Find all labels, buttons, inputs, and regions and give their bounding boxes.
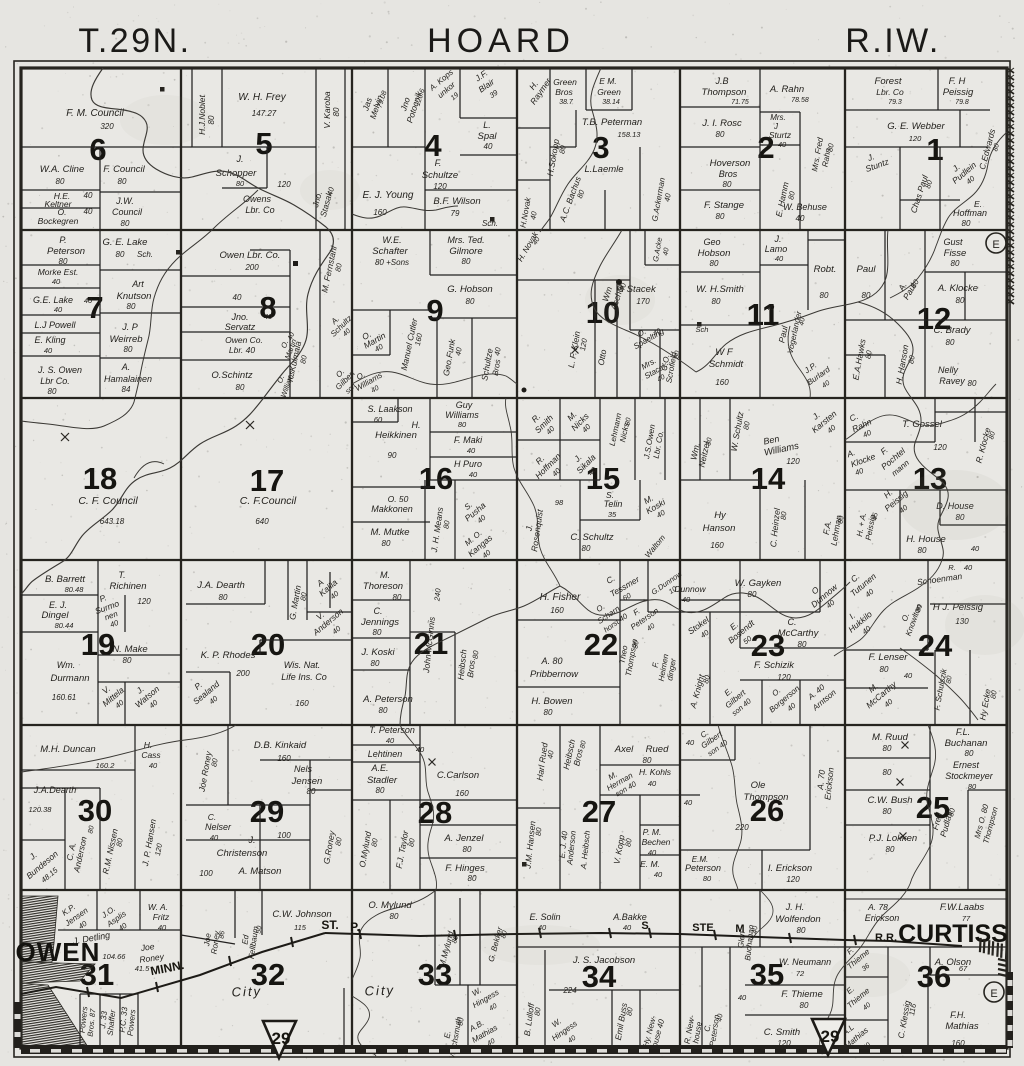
svg-text:F.W.Laabs: F.W.Laabs xyxy=(940,902,985,913)
svg-text:Ravey: Ravey xyxy=(939,376,965,386)
svg-text:Lbr. Co: Lbr. Co xyxy=(876,87,904,97)
svg-text:S. Laakson: S. Laakson xyxy=(367,404,412,414)
svg-text:115: 115 xyxy=(294,923,307,932)
svg-text:Cass: Cass xyxy=(141,750,161,760)
svg-text:Bros: Bros xyxy=(719,169,738,179)
svg-text:F.: F. xyxy=(435,158,442,168)
svg-text:I. Erickson: I. Erickson xyxy=(768,863,812,874)
svg-text:18: 18 xyxy=(83,461,117,496)
svg-text:Council: Council xyxy=(112,207,143,217)
svg-text:80: 80 xyxy=(236,179,245,188)
svg-text:Ernest: Ernest xyxy=(953,760,980,770)
svg-text:E. J.: E. J. xyxy=(49,600,67,610)
svg-text:80: 80 xyxy=(457,1017,465,1026)
svg-text:80: 80 xyxy=(883,768,892,777)
svg-text:W. Behuse: W. Behuse xyxy=(783,202,827,212)
svg-text:40: 40 xyxy=(686,738,695,747)
svg-text:40: 40 xyxy=(964,563,973,572)
svg-text:E. Solin: E. Solin xyxy=(529,912,560,922)
svg-text:80: 80 xyxy=(307,787,316,796)
svg-text:A. Jenzel: A. Jenzel xyxy=(443,833,484,844)
svg-text:C.: C. xyxy=(788,617,797,627)
svg-text:C.W. Bush: C.W. Bush xyxy=(867,795,912,806)
svg-text:160: 160 xyxy=(715,378,729,387)
svg-text:1: 1 xyxy=(926,132,943,167)
svg-text:Green: Green xyxy=(597,87,621,97)
svg-text:Williams: Williams xyxy=(445,410,479,420)
svg-text:A.E.: A.E. xyxy=(370,763,388,773)
svg-text:Morke Est.: Morke Est. xyxy=(38,267,79,277)
svg-text:C. F. Council: C. F. Council xyxy=(78,495,138,507)
svg-text:Bros: Bros xyxy=(555,87,573,97)
svg-text:Sch.: Sch. xyxy=(137,250,153,259)
svg-text:R.IW.: R.IW. xyxy=(845,22,941,60)
svg-text:J.: J. xyxy=(235,154,243,164)
svg-text:Gilmore: Gilmore xyxy=(449,246,482,257)
svg-text:CURTISS: CURTISS xyxy=(898,920,1008,948)
svg-text:50: 50 xyxy=(256,925,264,934)
svg-text:F. Hinges: F. Hinges xyxy=(445,863,485,874)
svg-text:Schopper: Schopper xyxy=(216,168,258,179)
svg-text:C.: C. xyxy=(208,812,217,822)
svg-text:80: 80 xyxy=(59,257,68,266)
svg-text:40: 40 xyxy=(752,926,760,935)
svg-text:16: 16 xyxy=(419,461,453,496)
svg-text:Thompson: Thompson xyxy=(744,792,789,803)
svg-text:30: 30 xyxy=(78,793,112,828)
svg-text:E M.: E M. xyxy=(599,76,616,86)
svg-text:98: 98 xyxy=(555,498,564,507)
svg-text:40: 40 xyxy=(54,305,63,314)
svg-text:G. Hobson: G. Hobson xyxy=(447,284,492,295)
svg-text:80: 80 xyxy=(332,107,341,116)
svg-text:80: 80 xyxy=(800,1001,809,1010)
svg-text:40: 40 xyxy=(648,779,657,788)
svg-text:100: 100 xyxy=(199,869,213,878)
svg-text:80: 80 xyxy=(712,297,721,306)
svg-text:38.14: 38.14 xyxy=(602,99,620,106)
svg-text:Green: Green xyxy=(553,77,577,87)
svg-text:40: 40 xyxy=(233,293,242,302)
svg-text:80: 80 xyxy=(945,675,953,684)
svg-text:80: 80 xyxy=(956,296,965,305)
svg-text:Guy: Guy xyxy=(456,400,473,410)
svg-text:F.H.: F.H. xyxy=(950,1010,966,1020)
svg-text:40: 40 xyxy=(662,247,670,256)
svg-text:Hamalainen: Hamalainen xyxy=(104,374,152,384)
svg-text:S: S xyxy=(641,920,648,932)
svg-text:160.2: 160.2 xyxy=(96,761,116,770)
svg-text:5: 5 xyxy=(255,126,272,161)
svg-text:120: 120 xyxy=(433,182,447,191)
svg-text:Schultze: Schultze xyxy=(422,170,458,181)
svg-text:320: 320 xyxy=(100,122,114,131)
svg-text:80: 80 xyxy=(703,874,712,883)
svg-text:80: 80 xyxy=(716,130,725,139)
svg-text:120: 120 xyxy=(137,597,151,606)
svg-text:HOARD: HOARD xyxy=(427,22,575,60)
svg-text:80: 80 xyxy=(393,593,402,602)
svg-text:80: 80 xyxy=(56,177,65,186)
svg-text:Peissig: Peissig xyxy=(943,87,974,98)
svg-text:Stadler: Stadler xyxy=(367,775,398,786)
svg-text:A. 78: A. 78 xyxy=(867,902,888,912)
svg-text:M. Mutke: M. Mutke xyxy=(370,527,409,538)
svg-text:Hoverson: Hoverson xyxy=(710,158,751,169)
svg-text:A. 80: A. 80 xyxy=(540,656,562,666)
svg-text:V. Karoba: V. Karoba xyxy=(322,91,332,128)
svg-text:80: 80 xyxy=(946,338,955,347)
svg-text:240: 240 xyxy=(432,587,442,602)
svg-text:80: 80 xyxy=(376,786,385,795)
svg-text:80: 80 xyxy=(582,544,591,553)
svg-text:J. I. Rosc: J. I. Rosc xyxy=(701,118,742,129)
svg-text:79.3: 79.3 xyxy=(888,99,902,106)
svg-text:80: 80 xyxy=(883,807,892,816)
svg-text:40: 40 xyxy=(717,1013,725,1022)
svg-text:A. Matson: A. Matson xyxy=(238,866,282,877)
svg-text:120: 120 xyxy=(786,875,800,884)
svg-text:38.7: 38.7 xyxy=(559,99,574,106)
svg-text:80: 80 xyxy=(962,219,971,228)
svg-text:80: 80 xyxy=(382,539,391,548)
svg-text:H.: H. xyxy=(412,420,421,430)
svg-text:T. Peterson: T. Peterson xyxy=(369,725,415,735)
svg-text:F. Thieme: F. Thieme xyxy=(781,989,823,1000)
svg-text:Fritz: Fritz xyxy=(153,912,170,922)
svg-text:City: City xyxy=(231,983,262,999)
svg-text:City: City xyxy=(364,982,395,998)
svg-text:160: 160 xyxy=(550,606,564,615)
svg-text:E: E xyxy=(992,239,999,251)
svg-text:79: 79 xyxy=(451,209,460,218)
svg-text:Hanson: Hanson xyxy=(703,523,736,534)
svg-text:40: 40 xyxy=(623,923,632,932)
svg-text:27: 27 xyxy=(582,794,616,829)
svg-text:Mrs.: Mrs. xyxy=(770,113,786,122)
svg-text:J.: J. xyxy=(247,835,255,845)
svg-text:40: 40 xyxy=(210,833,219,842)
svg-text:A. Klocke: A. Klocke xyxy=(937,283,978,294)
svg-text:40: 40 xyxy=(84,207,93,216)
svg-text:Joe: Joe xyxy=(139,941,155,953)
svg-text:R.R.: R.R. xyxy=(875,932,897,944)
svg-text:Jensen: Jensen xyxy=(291,776,323,787)
svg-text:P.J. Lokken: P.J. Lokken xyxy=(869,833,917,844)
svg-text:Jennings: Jennings xyxy=(360,617,399,628)
svg-text:40: 40 xyxy=(796,214,805,223)
svg-text:120.38: 120.38 xyxy=(29,805,53,814)
svg-text:40: 40 xyxy=(484,142,493,151)
svg-text:Lamo: Lamo xyxy=(765,244,788,254)
svg-text:Sturtz: Sturtz xyxy=(769,130,792,140)
svg-text:J.B: J.B xyxy=(714,76,728,86)
svg-text:P.: P. xyxy=(59,235,66,245)
svg-text:80: 80 xyxy=(124,345,133,354)
svg-text:Nelly: Nelly xyxy=(938,365,959,375)
svg-text:Thompson: Thompson xyxy=(702,87,747,98)
svg-text:40: 40 xyxy=(738,993,747,1002)
svg-text:40: 40 xyxy=(682,595,691,604)
svg-text:M.H. Duncan: M.H. Duncan xyxy=(40,744,95,755)
svg-text:T.: T. xyxy=(118,570,125,580)
svg-text:643.18: 643.18 xyxy=(100,517,125,526)
svg-text:640: 640 xyxy=(255,517,269,526)
svg-text:80: 80 xyxy=(632,640,640,649)
svg-text:Nels: Nels xyxy=(294,764,313,774)
svg-text:80: 80 xyxy=(379,706,388,715)
svg-text:80: 80 xyxy=(880,665,889,674)
svg-text:Axel: Axel xyxy=(614,744,634,755)
svg-text:Life Ins. Co: Life Ins. Co xyxy=(281,672,327,682)
svg-text:Robt.: Robt. xyxy=(814,264,837,275)
svg-text:F. Stange: F. Stange xyxy=(704,200,744,211)
svg-text:80: 80 xyxy=(723,180,732,189)
svg-text:158.13: 158.13 xyxy=(618,130,642,139)
svg-text:Lbr. 40: Lbr. 40 xyxy=(229,345,255,355)
svg-text:D.B. Kinkaid: D.B. Kinkaid xyxy=(254,740,307,751)
svg-text:80: 80 xyxy=(458,420,467,429)
svg-text:80: 80 xyxy=(236,383,245,392)
svg-text:F. H: F. H xyxy=(949,76,966,87)
svg-text:80: 80 xyxy=(883,744,892,753)
svg-text:Erickson: Erickson xyxy=(865,913,900,923)
svg-text:W. H.Smith: W. H.Smith xyxy=(696,284,744,295)
svg-text:Wolfendon: Wolfendon xyxy=(775,914,820,925)
svg-text:O. 50: O. 50 xyxy=(388,494,409,504)
svg-text:6: 6 xyxy=(89,132,106,167)
svg-text:B.F. Wilson: B.F. Wilson xyxy=(433,196,480,207)
svg-text:Heikkinen: Heikkinen xyxy=(375,430,417,441)
svg-text:Wm.: Wm. xyxy=(57,660,76,670)
svg-text:M. Ruud: M. Ruud xyxy=(872,732,909,743)
svg-text:40: 40 xyxy=(149,761,158,770)
svg-text:Dunnow: Dunnow xyxy=(674,584,706,594)
svg-text:Knutson: Knutson xyxy=(117,291,152,302)
svg-text:Forest: Forest xyxy=(875,76,902,87)
svg-text:J.: J. xyxy=(773,234,781,244)
svg-text:40: 40 xyxy=(971,544,980,553)
svg-text:120: 120 xyxy=(909,134,922,143)
svg-text:Spal: Spal xyxy=(477,131,497,142)
svg-text:40: 40 xyxy=(158,923,167,932)
svg-text:120: 120 xyxy=(786,457,800,466)
svg-text:W. Gayken: W. Gayken xyxy=(735,578,782,589)
svg-text:Dingel: Dingel xyxy=(42,610,70,621)
svg-text:80: 80 xyxy=(48,387,57,396)
svg-text:35: 35 xyxy=(608,510,617,519)
svg-text:224: 224 xyxy=(562,986,577,995)
svg-text:W.E.: W.E. xyxy=(382,235,401,245)
svg-text:80: 80 xyxy=(219,593,228,602)
svg-text:Weirreb: Weirreb xyxy=(109,334,142,345)
svg-text:Jno.: Jno. xyxy=(230,312,248,322)
svg-text:40: 40 xyxy=(386,736,395,745)
svg-text:71.75: 71.75 xyxy=(731,99,749,106)
svg-text:Stockmeyer: Stockmeyer xyxy=(945,771,994,781)
svg-text:Ole: Ole xyxy=(751,780,766,791)
svg-text:F. Maki: F. Maki xyxy=(454,435,483,445)
svg-text:E. Kling: E. Kling xyxy=(34,335,65,345)
svg-text:Hy: Hy xyxy=(714,510,727,521)
svg-text:Pribbernow: Pribbernow xyxy=(530,669,579,680)
svg-text:80: 80 xyxy=(918,546,927,555)
svg-text:Lbr. Co: Lbr. Co xyxy=(245,205,274,215)
svg-text:160.61: 160.61 xyxy=(52,693,76,702)
svg-text:Schafter: Schafter xyxy=(372,246,408,257)
svg-text:P. M.: P. M. xyxy=(643,827,662,837)
svg-text:Lehtinen: Lehtinen xyxy=(368,749,403,759)
svg-text:C. Brady: C. Brady xyxy=(934,325,972,336)
svg-text:80: 80 xyxy=(544,708,553,717)
svg-text:K. P. Rhodes: K. P. Rhodes xyxy=(201,650,256,661)
svg-text:Buchanan: Buchanan xyxy=(945,738,988,749)
svg-text:60: 60 xyxy=(374,415,383,424)
svg-text:78.58: 78.58 xyxy=(791,97,809,104)
svg-text:H. Kohls: H. Kohls xyxy=(639,767,672,777)
svg-text:Mrs. Ted.: Mrs. Ted. xyxy=(447,235,484,245)
svg-text:Hoffman: Hoffman xyxy=(953,208,987,218)
svg-text:80: 80 xyxy=(951,259,960,268)
svg-text:C.: C. xyxy=(374,606,383,616)
svg-text:80: 80 xyxy=(466,297,475,306)
svg-text:M: M xyxy=(735,923,744,935)
svg-text:11: 11 xyxy=(747,297,780,332)
svg-text:Rued: Rued xyxy=(646,744,669,755)
svg-text:80: 80 xyxy=(462,257,471,266)
svg-text:J. P: J. P xyxy=(121,322,138,332)
svg-text:L.J Powell: L.J Powell xyxy=(34,320,76,330)
svg-text:O.Schintz: O.Schintz xyxy=(211,370,252,381)
svg-text:200: 200 xyxy=(235,669,250,678)
svg-text:40: 40 xyxy=(467,446,476,455)
svg-text:40: 40 xyxy=(469,470,478,479)
svg-text:80: 80 xyxy=(837,515,845,524)
svg-text:80: 80 xyxy=(127,302,136,311)
svg-text:J. Koski: J. Koski xyxy=(360,647,395,658)
svg-text:E: E xyxy=(990,988,997,1000)
svg-text:80: 80 xyxy=(710,259,719,268)
svg-text:72: 72 xyxy=(796,969,805,978)
svg-text:17: 17 xyxy=(250,463,284,498)
svg-text:80: 80 xyxy=(797,926,806,935)
svg-text:M.: M. xyxy=(380,570,390,580)
svg-text:147.27: 147.27 xyxy=(252,109,277,118)
svg-text:Fisse: Fisse xyxy=(944,248,967,259)
svg-text:Durmann: Durmann xyxy=(50,673,89,684)
svg-text:120: 120 xyxy=(277,180,291,189)
svg-text:40: 40 xyxy=(52,277,61,286)
svg-text:F. Schizik: F. Schizik xyxy=(754,660,795,671)
svg-text:Makkonen: Makkonen xyxy=(371,504,413,514)
svg-text:F. Council: F. Council xyxy=(103,164,145,175)
svg-text:80: 80 xyxy=(373,628,382,637)
svg-text:Bockegren: Bockegren xyxy=(38,216,79,226)
svg-text:Paul: Paul xyxy=(856,264,876,275)
svg-text:84: 84 xyxy=(122,385,131,394)
svg-text:80: 80 xyxy=(371,659,380,668)
svg-text:Peterson: Peterson xyxy=(47,246,85,257)
svg-text:Gust: Gust xyxy=(943,237,963,247)
svg-text:E. M.: E. M. xyxy=(640,859,660,869)
svg-text:40: 40 xyxy=(84,296,93,305)
svg-text:160: 160 xyxy=(455,789,469,798)
svg-text:80: 80 xyxy=(673,350,681,359)
svg-text:Peterson: Peterson xyxy=(685,863,721,873)
svg-text:80: 80 xyxy=(643,756,652,765)
svg-text:L.: L. xyxy=(483,120,491,130)
svg-text:J.W.: J.W. xyxy=(115,196,134,206)
svg-text:Owens: Owens xyxy=(243,194,272,204)
svg-text:40: 40 xyxy=(904,671,913,680)
svg-text:40: 40 xyxy=(648,848,657,857)
svg-text:J. H.: J. H. xyxy=(785,902,805,912)
svg-text:40: 40 xyxy=(684,798,693,807)
svg-text:Geo: Geo xyxy=(703,237,720,247)
svg-text:29: 29 xyxy=(821,1027,840,1046)
svg-text:Richinen: Richinen xyxy=(110,581,147,592)
svg-text:80: 80 xyxy=(798,640,807,649)
svg-text:J. S. Owen: J. S. Owen xyxy=(37,365,82,375)
svg-text:B. Barrett: B. Barrett xyxy=(45,574,85,585)
svg-text:80.48: 80.48 xyxy=(65,585,85,594)
svg-text:80: 80 xyxy=(965,749,974,758)
svg-text:Bros.: Bros. xyxy=(465,657,477,678)
svg-text:C. F.Council: C. F.Council xyxy=(240,495,297,507)
svg-text:P.: P. xyxy=(350,920,360,934)
svg-text:L.Laemle: L.Laemle xyxy=(584,164,623,175)
svg-text:T.B. Peterman: T.B. Peterman xyxy=(582,117,642,128)
svg-text:Christenson: Christenson xyxy=(217,848,268,859)
svg-text:80: 80 xyxy=(968,379,977,388)
svg-text:J.A. Dearth: J.A. Dearth xyxy=(196,580,245,591)
svg-text:N. Make: N. Make xyxy=(112,644,147,655)
svg-text:40: 40 xyxy=(654,870,663,879)
svg-text:C. Smith: C. Smith xyxy=(764,1027,800,1038)
svg-text:Thoreson: Thoreson xyxy=(363,581,403,592)
svg-text:100: 100 xyxy=(277,831,291,840)
svg-text:80: 80 xyxy=(463,845,472,854)
svg-text:41.5: 41.5 xyxy=(135,964,150,973)
svg-text:A.: A. xyxy=(121,362,131,372)
svg-text:ST.: ST. xyxy=(321,918,338,932)
svg-text:Lbr Co.: Lbr Co. xyxy=(40,376,70,386)
svg-text:120: 120 xyxy=(777,673,791,682)
svg-text:R.: R. xyxy=(948,563,956,572)
svg-text:Mathias: Mathias xyxy=(945,1021,979,1032)
svg-text:G.E. Lake: G.E. Lake xyxy=(33,295,73,305)
svg-text:104.66: 104.66 xyxy=(103,952,127,961)
svg-text:67: 67 xyxy=(959,964,968,973)
svg-text:C.Carlson: C.Carlson xyxy=(437,770,479,781)
svg-text:80: 80 xyxy=(118,177,127,186)
svg-text:40: 40 xyxy=(84,191,93,200)
svg-text:J.A.Dearth: J.A.Dearth xyxy=(33,785,77,795)
svg-text:Owen Lbr. Co.: Owen Lbr. Co. xyxy=(220,250,281,261)
svg-text:40: 40 xyxy=(775,254,784,263)
svg-text:Art: Art xyxy=(131,279,144,289)
svg-text:80: 80 xyxy=(820,291,829,300)
svg-text:W. A.: W. A. xyxy=(148,902,168,912)
svg-text:Schmidt: Schmidt xyxy=(709,359,744,370)
svg-text:40: 40 xyxy=(264,312,273,321)
svg-text:79.8: 79.8 xyxy=(955,99,969,106)
svg-text:160: 160 xyxy=(710,541,724,550)
svg-text:80: 80 xyxy=(716,212,725,221)
svg-text:80: 80 xyxy=(123,656,132,665)
svg-text:14: 14 xyxy=(751,461,786,496)
svg-text:80.44: 80.44 xyxy=(55,621,74,630)
